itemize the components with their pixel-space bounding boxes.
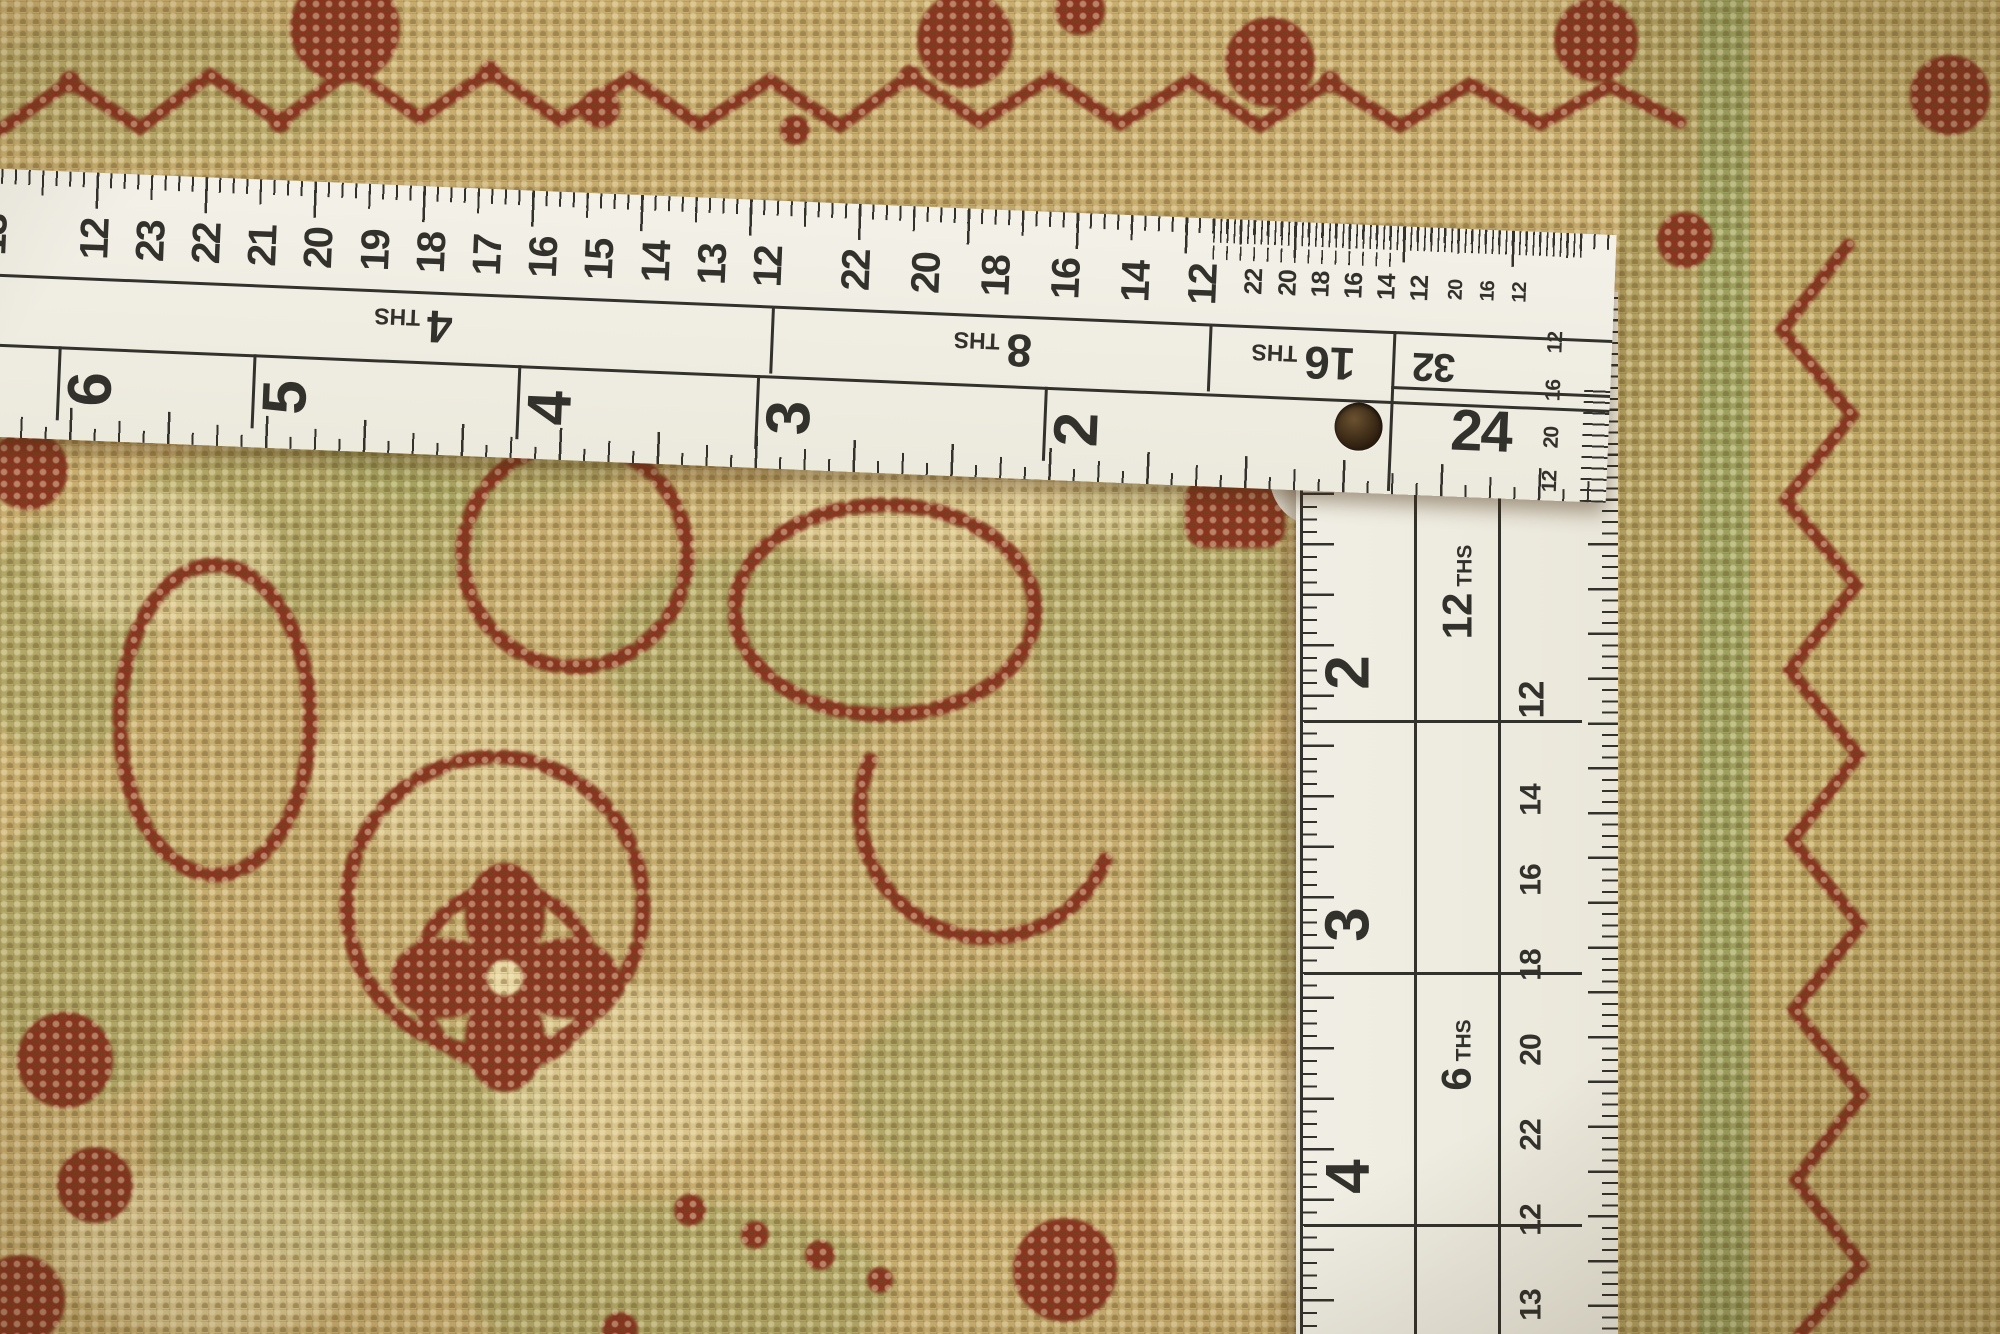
tnum-20: 20 bbox=[905, 236, 948, 310]
hanging-hole bbox=[1334, 402, 1384, 452]
tnum-16: 16 bbox=[1045, 242, 1088, 316]
tnum-12: 12 bbox=[74, 202, 117, 276]
vnum-12: 12 bbox=[1502, 680, 1562, 720]
tnum-15: 15 bbox=[578, 223, 621, 297]
tnum-23: 23 bbox=[130, 204, 173, 278]
side-divider-1 bbox=[1414, 402, 1417, 1334]
tnum-12: 12 bbox=[1499, 270, 1541, 314]
vnum-16: 16 bbox=[1502, 860, 1562, 900]
vnum-12: 12 bbox=[1502, 1200, 1562, 1240]
vnum-22: 22 bbox=[1502, 1115, 1562, 1155]
cnum-20: 20 bbox=[1532, 419, 1573, 457]
cnum-12: 12 bbox=[1530, 463, 1571, 501]
tnum-14: 14 bbox=[1115, 245, 1158, 319]
corner-right-edge-ticks bbox=[1580, 382, 1611, 503]
cnum-12: 12 bbox=[1535, 324, 1576, 362]
tnum-12: 12 bbox=[1182, 247, 1225, 321]
tnum-13: 13 bbox=[691, 227, 734, 301]
tnum-13: 13 bbox=[0, 198, 15, 272]
tnum-12: 12 bbox=[747, 230, 790, 304]
vnum-18: 18 bbox=[1502, 945, 1562, 985]
tnum-22: 22 bbox=[186, 207, 229, 281]
vnum-14: 14 bbox=[1502, 780, 1562, 820]
tnum-17: 17 bbox=[466, 218, 509, 292]
corner-number-32: 32 bbox=[1402, 342, 1466, 390]
cnum-16: 16 bbox=[1533, 372, 1574, 410]
tnum-16: 16 bbox=[522, 220, 565, 294]
tnum-14: 14 bbox=[635, 225, 678, 299]
tnum-18: 18 bbox=[410, 216, 453, 290]
side-divider-2 bbox=[1498, 402, 1501, 1334]
vnum-13: 13 bbox=[1502, 1285, 1562, 1325]
rug-ruler-photo: 1312232221201918171615141312222018161412… bbox=[0, 0, 2000, 1334]
tnum-22: 22 bbox=[835, 233, 878, 307]
corner-number-24: 24 bbox=[1449, 396, 1512, 465]
tnum-21: 21 bbox=[242, 209, 285, 283]
inner-edge-ticks bbox=[1302, 442, 1338, 1334]
tnum-19: 19 bbox=[355, 213, 398, 287]
tnum-20: 20 bbox=[298, 211, 341, 285]
vnum-20: 20 bbox=[1502, 1030, 1562, 1070]
ths-sec-16: 16THS bbox=[1207, 325, 1397, 399]
tnum-18: 18 bbox=[975, 239, 1018, 313]
